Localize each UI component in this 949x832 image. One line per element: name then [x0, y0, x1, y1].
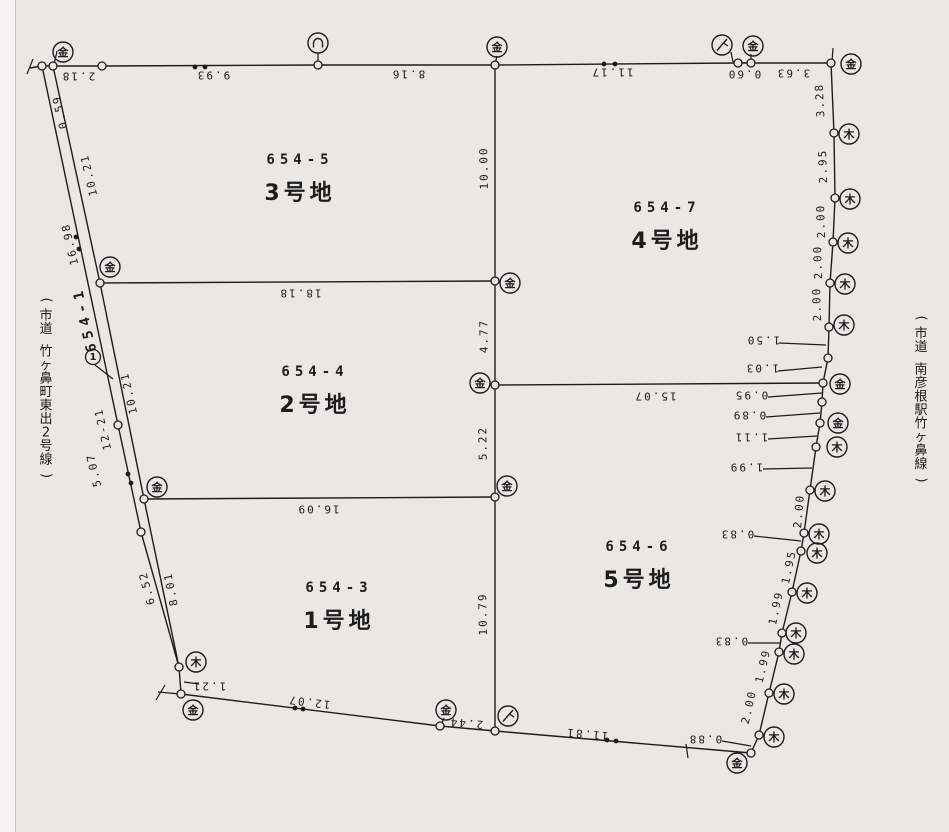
dimension-label: 16.09 — [296, 503, 339, 516]
survey-point — [314, 61, 322, 69]
boundary-line-north-edge — [30, 63, 831, 68]
stake-glyph: 木 — [813, 527, 826, 541]
stake-glyph: 木 — [842, 236, 855, 250]
parcel-lot-number: 654-6 — [605, 539, 672, 555]
dimension-label: 18.18 — [278, 287, 321, 300]
stake-slash-tick — [724, 43, 729, 46]
dimension-label: 6.52 — [136, 570, 157, 607]
stake-glyph: 木 — [843, 127, 856, 141]
dimension-label: 0.60 — [727, 68, 762, 81]
road-name-label: 線 — [39, 452, 52, 468]
survey-point — [800, 529, 808, 537]
stake-glyph: 金 — [501, 479, 514, 493]
parcel-lot-number: 654-7 — [633, 200, 700, 216]
parcel-name: 5号地 — [603, 568, 674, 593]
segment-dot — [129, 481, 134, 486]
leader-tick — [779, 343, 826, 345]
survey-point — [816, 419, 824, 427]
survey-point — [829, 238, 837, 246]
survey-point — [98, 62, 106, 70]
leader-tick — [731, 52, 733, 62]
survey-point — [747, 749, 755, 757]
dimension-label: 4.77 — [477, 319, 491, 354]
stake-glyph: 金 — [731, 756, 744, 770]
dimension-label: 3.63 — [776, 67, 811, 80]
road-name-label: 道 — [914, 340, 927, 355]
road-name-paren: ( — [39, 297, 54, 302]
parcel-name: 4号地 — [631, 229, 702, 254]
stake-glyph: 木 — [801, 586, 814, 600]
survey-drawing: 金金金金木木木木木金金木木木木木木木木木金金金木金金金金金2.189.938.1… — [0, 0, 949, 832]
dimension-label: 1.99 — [729, 461, 764, 474]
dimension-label: 10.79 — [476, 592, 490, 635]
dimension-label: 9.93 — [196, 69, 231, 82]
cadastral-map-scan: 金金金金木木木木木金金木木木木木木木木木金金金木金金金金金2.189.938.1… — [0, 0, 949, 832]
road-name-label: 道 — [39, 322, 52, 337]
survey-point — [96, 279, 104, 287]
leader-tick — [27, 59, 33, 74]
dimension-label: 12-21 — [92, 407, 114, 452]
dimension-label: 1.50 — [746, 334, 781, 347]
leader-tick — [766, 413, 820, 417]
survey-point — [734, 59, 742, 67]
dimension-label: 8.16 — [391, 68, 426, 81]
dimension-label: 11.81 — [565, 726, 609, 743]
dimension-label: 0.88 — [688, 733, 723, 746]
survey-point — [137, 528, 145, 536]
survey-point — [491, 381, 499, 389]
leader-tick — [768, 393, 822, 397]
survey-point — [49, 62, 57, 70]
dimension-label: 10.00 — [477, 146, 491, 189]
parcel-name: 2号地 — [279, 393, 350, 418]
scan-paper-edge — [0, 0, 16, 832]
boundary-line-div-15-07 — [495, 383, 823, 385]
stake-glyph: 木 — [811, 546, 824, 560]
road-name-paren: ) — [914, 477, 929, 482]
survey-point — [755, 731, 763, 739]
dimension-label: 0.83 — [714, 635, 749, 648]
leader-tick — [686, 744, 688, 758]
leader-tick — [754, 536, 801, 541]
boundary-line-div-16-09 — [144, 497, 495, 499]
parcel-name: 3号地 — [264, 181, 335, 206]
dimension-label: 1.99 — [766, 590, 786, 626]
dimension-label: 0.95 — [734, 389, 769, 402]
survey-point — [140, 495, 148, 503]
survey-point — [114, 421, 122, 429]
survey-point — [830, 129, 838, 137]
survey-point — [827, 59, 835, 67]
dimension-label: 1.95 — [779, 549, 799, 585]
survey-point — [38, 62, 46, 70]
dimension-label: 1.99 — [753, 648, 773, 685]
road-name-label: 線 — [914, 456, 927, 472]
segment-dot — [614, 739, 619, 744]
leader-tick — [763, 468, 812, 469]
survey-point — [775, 648, 783, 656]
boundary-line-road-outer — [42, 66, 181, 694]
survey-point — [806, 486, 814, 494]
dimension-label: 3.28 — [813, 82, 828, 117]
dimension-label: 16.98 — [59, 222, 81, 267]
stake-glyph: 金 — [504, 276, 517, 290]
leader-tick — [768, 436, 817, 439]
survey-point — [491, 727, 499, 735]
stake-glyph: 金 — [834, 377, 847, 391]
stake-glyph: 木 — [839, 277, 852, 291]
survey-point — [778, 629, 786, 637]
stake-glyph: 木 — [838, 318, 851, 332]
parcel-lot-number: 654-5 — [266, 152, 333, 168]
dimension-label: 1.21 — [192, 680, 227, 693]
stake-glyph: 木 — [831, 440, 844, 454]
stake-glyph: 木 — [844, 192, 857, 206]
dimension-label: 15.07 — [633, 390, 676, 403]
stake-icon — [308, 33, 328, 53]
stake-glyph: 金 — [151, 480, 164, 494]
dimension-label: 8.01 — [161, 571, 180, 607]
leader-tick — [722, 741, 751, 746]
dimension-label: 0.59 — [50, 94, 70, 131]
stake-glyph: 金 — [440, 703, 453, 717]
survey-point — [175, 663, 183, 671]
survey-point — [747, 59, 755, 67]
survey-point — [818, 398, 826, 406]
stake-glyph: 木 — [788, 647, 801, 661]
dimension-label: 2.44 — [448, 715, 484, 731]
segment-dot — [126, 472, 131, 477]
dimension-label: 11.17 — [590, 66, 633, 79]
stake-glyph: 金 — [491, 40, 504, 54]
dimension-label: 1.03 — [745, 362, 780, 375]
dimension-label: 0.89 — [732, 409, 767, 422]
stake-glyph: 金 — [474, 376, 487, 390]
dimension-label: 0.83 — [720, 528, 755, 541]
dimension-label: 2.00 — [810, 287, 824, 322]
survey-point — [491, 61, 499, 69]
stake-glyph: 木 — [190, 655, 203, 669]
dimension-label: 2.00 — [814, 204, 828, 239]
stake-arc-glyph — [314, 39, 323, 48]
dimension-label: 2.18 — [61, 70, 96, 83]
survey-point — [177, 690, 185, 698]
survey-point — [831, 194, 839, 202]
parcel-name: 1号地 — [303, 609, 374, 634]
stake-glyph: 木 — [819, 484, 832, 498]
stake-glyph: 金 — [845, 57, 858, 71]
stake-glyph: 木 — [778, 687, 791, 701]
stake-slash-tick — [510, 714, 515, 717]
survey-point — [824, 354, 832, 362]
stake-glyph: 金 — [57, 45, 70, 59]
stake-glyph: 金 — [104, 260, 117, 274]
survey-point — [826, 279, 834, 287]
survey-point — [436, 722, 444, 730]
boundary-line-div-18-18 — [100, 281, 495, 283]
parcel-lot-number: 654-3 — [305, 580, 372, 596]
road-name-paren: ) — [39, 473, 54, 478]
stake-glyph: 金 — [187, 703, 200, 717]
dimension-label: 2.00 — [739, 689, 759, 726]
survey-point — [491, 277, 499, 285]
stake-glyph: 木 — [790, 626, 803, 640]
stake-glyph: 金 — [832, 416, 845, 430]
survey-point — [825, 323, 833, 331]
survey-point — [812, 443, 820, 451]
dimension-label: 2.95 — [816, 149, 830, 184]
dimension-label: 2.00 — [811, 245, 825, 280]
survey-point — [819, 379, 827, 387]
survey-point — [788, 588, 796, 596]
stake-glyph: 金 — [747, 39, 760, 53]
survey-point — [491, 493, 499, 501]
dimension-label: 1.11 — [734, 431, 769, 444]
parcel-lot-number: 654-4 — [281, 364, 348, 380]
road-parcel-point-number: 1 — [90, 352, 97, 363]
boundary-line-road-inner — [53, 66, 179, 667]
dimension-label: 10.21 — [118, 371, 140, 416]
dimension-label: 2.00 — [791, 493, 807, 529]
road-name-paren: ( — [914, 315, 929, 320]
dimension-label: 5.07 — [84, 452, 104, 489]
dimension-label: 10.21 — [78, 153, 100, 198]
stake-glyph: 木 — [768, 730, 781, 744]
leader-tick — [778, 367, 822, 371]
leader-tick — [95, 365, 113, 379]
survey-point — [765, 689, 773, 697]
dimension-label: 5.22 — [476, 426, 490, 461]
